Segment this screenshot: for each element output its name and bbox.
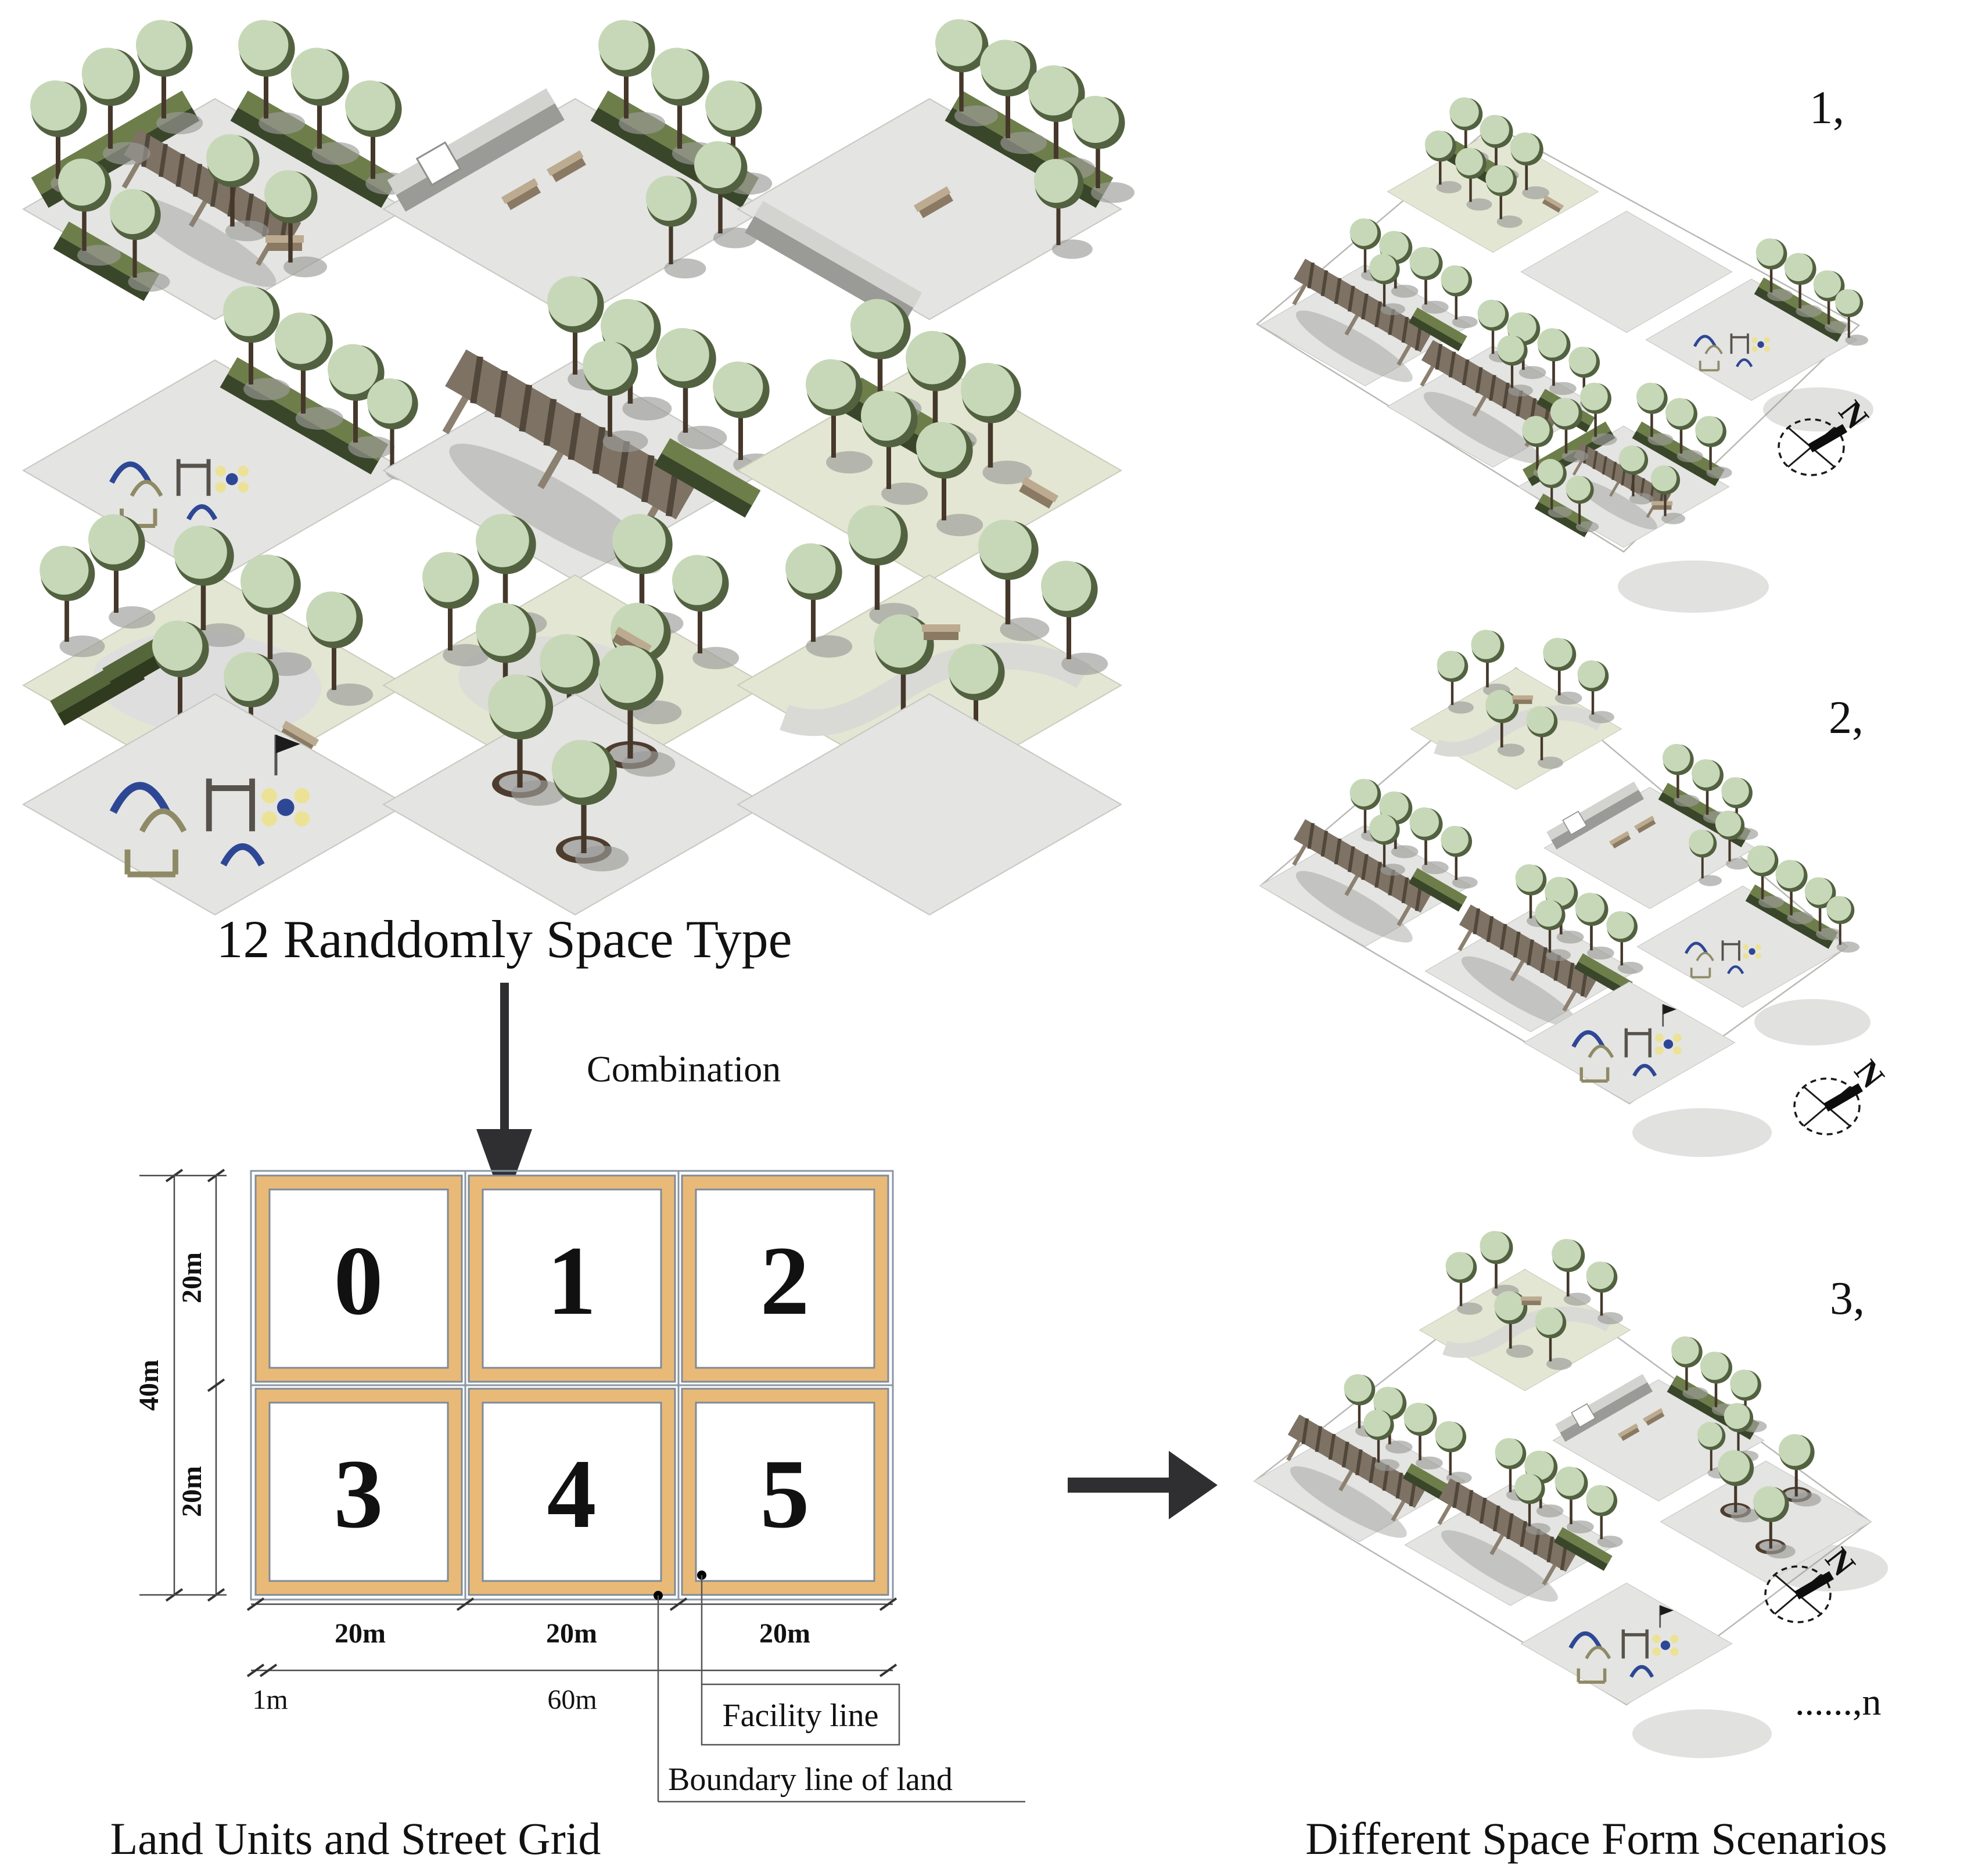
dim-60m: 60m	[547, 1684, 597, 1715]
cell-number: 5	[760, 1439, 810, 1548]
scenario-2-plot-winding-path	[1411, 630, 1622, 789]
land-unit-cell-2: 2	[682, 1176, 888, 1382]
dim-20m-top: 20m	[177, 1252, 207, 1303]
scenario-1: 1, N	[1257, 82, 1876, 613]
cell-number: 1	[547, 1226, 597, 1335]
scenario-3: 3, N	[1254, 1231, 1889, 1758]
combination-label: Combination	[587, 1048, 781, 1090]
land-unit-cell-3: 3	[256, 1389, 462, 1595]
scenario-2: 2, N	[1260, 630, 1892, 1157]
scenario-2-label: 2,	[1829, 692, 1864, 743]
dim-20m-c3: 20m	[759, 1618, 810, 1649]
scenario-n-label: ......,n	[1795, 1681, 1882, 1723]
scenario-3-plot-winding-path	[1420, 1231, 1631, 1390]
space-type-5-large-pergola-icon	[383, 276, 780, 592]
space-type-3-front-wall-hedge-icon	[738, 19, 1135, 319]
cell-number: 3	[334, 1439, 383, 1548]
facility-line-callout: Facility line	[697, 1570, 899, 1745]
scenario-1-plot-tree-rows	[1388, 98, 1599, 253]
scenario-3-label: 3,	[1830, 1273, 1865, 1324]
land-unit-cell-1: 1	[469, 1176, 675, 1382]
space-type-2-walled-court-icon	[383, 20, 772, 319]
caption-scenarios: Different Space Form Scenarios	[1305, 1813, 1887, 1864]
dim-20m-bottom: 20m	[177, 1466, 207, 1517]
scenario-arrow-icon	[1068, 1451, 1218, 1519]
land-unit-cell-5: 5	[682, 1389, 888, 1595]
land-units-grid: 0 1 2 3 4 5	[134, 1170, 1025, 1802]
scenario-2-plot-walled-court	[1545, 744, 1758, 909]
north-compass-icon	[1794, 1079, 1861, 1134]
vertical-dimensions: 20m 20m 40m	[134, 1170, 227, 1601]
combination-arrow-icon	[476, 983, 532, 1207]
boundary-line-callout: Boundary line of land	[654, 1591, 1025, 1802]
facility-line-label: Facility line	[722, 1698, 878, 1734]
space-type-10-playground-icon	[23, 694, 407, 915]
boundary-line-label: Boundary line of land	[668, 1762, 953, 1798]
scenario-2-plot-pergola-a	[1260, 779, 1478, 953]
cell-number: 0	[334, 1226, 383, 1335]
land-unit-cell-0: 0	[256, 1176, 462, 1382]
land-unit-cell-4: 4	[469, 1389, 675, 1595]
dim-20m-c1: 20m	[335, 1618, 386, 1649]
figure-canvas: 12 Randdomly Space Type Combination 0 1 …	[0, 0, 1971, 1876]
dim-1m: 1m	[252, 1684, 288, 1715]
cell-number: 2	[760, 1226, 810, 1335]
caption-land-units: Land Units and Street Grid	[110, 1813, 601, 1864]
scenario-1-label: 1,	[1810, 82, 1844, 134]
space-types-title: 12 Randdomly Space Type	[217, 910, 792, 969]
dim-20m-c2: 20m	[546, 1618, 597, 1649]
space-type-tiles-panel	[23, 19, 1135, 915]
dim-40m: 40m	[134, 1360, 164, 1411]
space-type-1-pergola-courtyard-icon	[23, 20, 412, 319]
cell-number: 4	[547, 1439, 597, 1548]
space-type-6-tree-rows-icon	[738, 299, 1121, 581]
